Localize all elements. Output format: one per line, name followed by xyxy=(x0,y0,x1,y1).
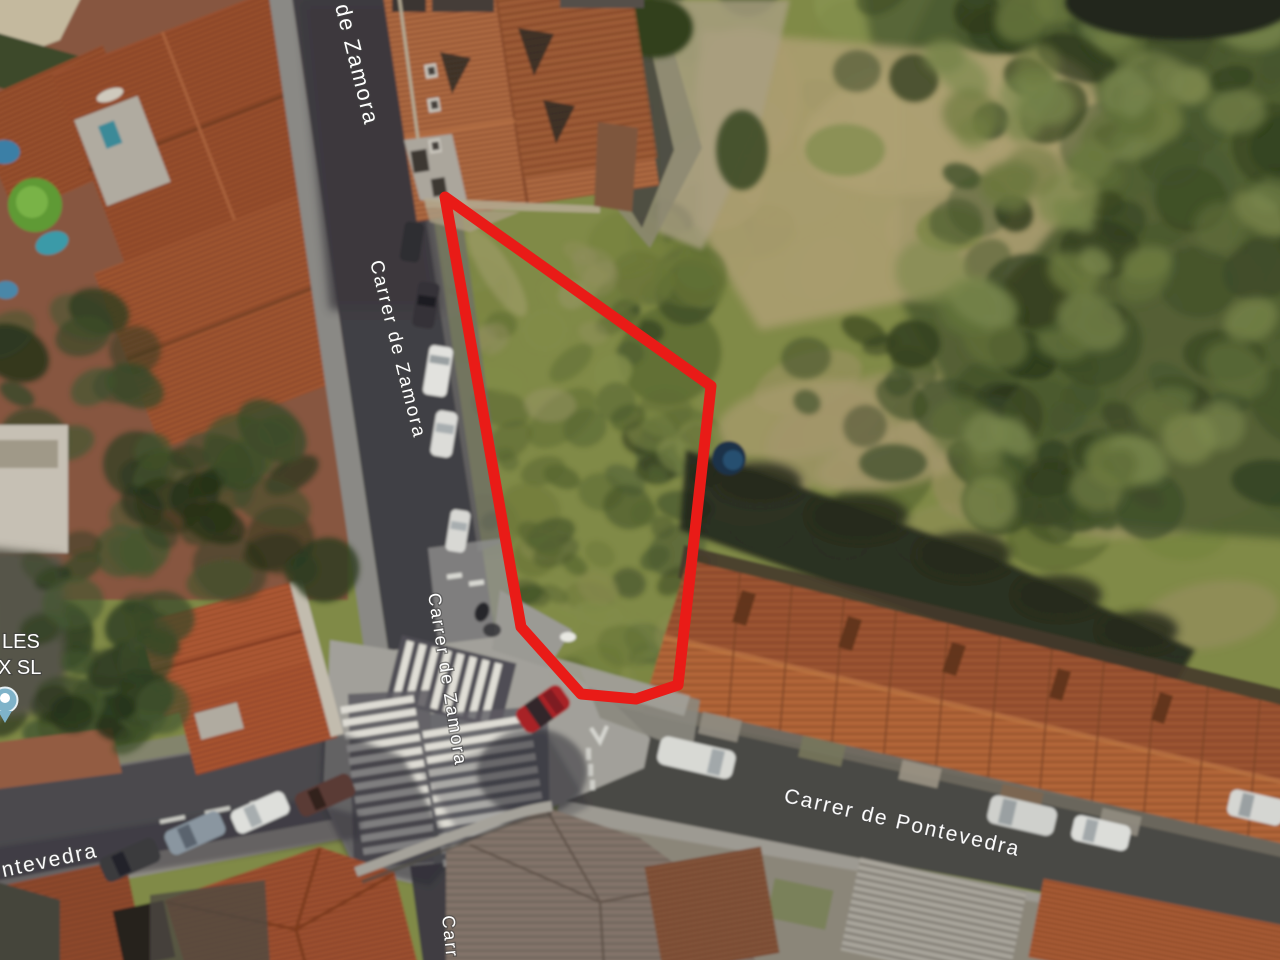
svg-text:X SL: X SL xyxy=(0,657,41,679)
svg-text:LES: LES xyxy=(2,631,40,653)
